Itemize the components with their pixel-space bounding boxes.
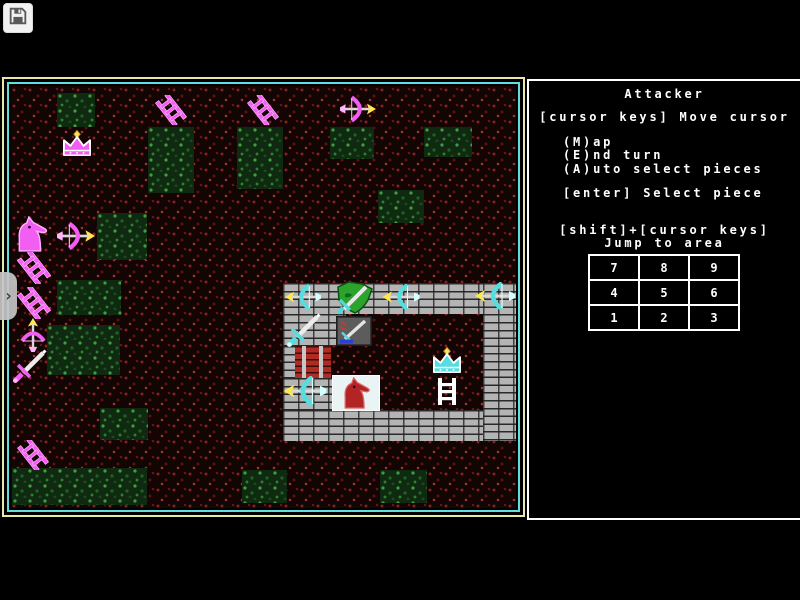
defender-crown[interactable] <box>429 347 465 375</box>
terrain-grass-patch <box>47 325 120 375</box>
drawer-toggle[interactable]: › <box>0 272 17 320</box>
menu-item-auto-select: (A)uto select pieces <box>563 163 764 176</box>
terrain-grass-patch <box>242 470 287 503</box>
terrain-grass-patch <box>12 468 147 505</box>
menu-item-map: (M)ap <box>563 136 764 149</box>
attacker-crossbow-sprite <box>57 221 95 251</box>
attacker-crossbow[interactable] <box>16 318 50 352</box>
menu-item-end-turn: (E)nd turn <box>563 149 764 162</box>
attacker-ladder-sprite <box>17 287 51 319</box>
defender-knight-selected[interactable] <box>333 376 379 410</box>
terrain-grass-patch <box>424 127 472 157</box>
terrain-grass-patch <box>380 470 427 503</box>
castle-gate <box>295 346 331 378</box>
select-piece-hint: [enter] Select piece <box>563 186 764 200</box>
terrain-grass-patch <box>57 93 95 127</box>
defender-crossbow-sprite <box>283 376 327 406</box>
attacker-crossbow-sprite <box>340 94 376 124</box>
defender-emblem-sprite <box>336 316 372 346</box>
terrain-grass-patch <box>378 190 424 223</box>
attacker-ladder[interactable] <box>16 440 50 470</box>
map-frame <box>2 77 525 517</box>
command-sidebar: Attacker [cursor keys] Move cursor (M)ap… <box>527 79 800 520</box>
defender-crossbow[interactable] <box>285 283 321 311</box>
defender-ladder[interactable] <box>436 378 458 405</box>
terrain-grass-patch <box>57 280 121 315</box>
defender-shield[interactable] <box>335 280 375 316</box>
keypad-cell-8: 8 <box>639 255 689 280</box>
attacker-ladder[interactable] <box>17 252 51 284</box>
attacker-crown[interactable] <box>58 130 96 158</box>
defender-crossbow-sprite <box>474 282 516 310</box>
attacker-knight[interactable] <box>13 216 49 252</box>
keypad-cell-6: 6 <box>689 280 739 305</box>
attacker-ladder[interactable] <box>155 95 187 125</box>
terrain-grass-patch <box>148 127 194 193</box>
keypad-cell-3: 3 <box>689 305 739 330</box>
game-map[interactable] <box>11 86 516 508</box>
castle-wall <box>283 410 516 441</box>
terrain-grass-patch <box>100 408 148 440</box>
attacker-ladder-sprite <box>16 440 50 470</box>
defender-sword-sprite <box>284 312 324 348</box>
jump-hint-keys: [shift]+[cursor keys] <box>529 223 800 237</box>
keypad-cell-5: 5 <box>639 280 689 305</box>
attacker-ladder-sprite <box>17 252 51 284</box>
turn-title: Attacker <box>529 87 800 101</box>
attacker-crossbow[interactable] <box>57 221 95 251</box>
map-frame-inner <box>7 82 520 512</box>
move-cursor-hint: [cursor keys] Move cursor <box>529 110 800 124</box>
defender-crossbow[interactable] <box>380 284 422 310</box>
defender-knight-selected-sprite <box>339 377 372 409</box>
defender-shield-sprite <box>335 280 375 316</box>
attacker-sword-sprite <box>12 348 48 384</box>
attacker-ladder-sprite <box>155 95 187 125</box>
defender-crown-sprite <box>429 347 465 375</box>
keypad-cell-9: 9 <box>689 255 739 280</box>
defender-crossbow[interactable] <box>283 376 327 406</box>
defender-ladder-sprite <box>436 378 458 405</box>
save-button[interactable] <box>3 3 33 33</box>
defender-crossbow-sprite <box>380 284 422 310</box>
defender-sword[interactable] <box>284 312 324 348</box>
attacker-ladder-sprite <box>247 95 279 125</box>
attacker-sword[interactable] <box>12 348 48 384</box>
terrain-grass-patch <box>330 127 374 159</box>
defender-crossbow-sprite <box>285 283 321 311</box>
keypad-cell-1: 1 <box>589 305 639 330</box>
jump-area-keypad: 7 8 9 4 5 6 1 2 3 <box>588 254 740 331</box>
jump-hint-label: Jump to area <box>529 236 800 250</box>
attacker-crossbow[interactable] <box>340 94 376 124</box>
keypad-cell-7: 7 <box>589 255 639 280</box>
defender-crossbow[interactable] <box>474 282 516 310</box>
castle-wall <box>283 346 295 378</box>
attacker-ladder[interactable] <box>247 95 279 125</box>
command-menu: (M)ap (E)nd turn (A)uto select pieces <box>563 136 764 176</box>
attacker-ladder[interactable] <box>17 287 51 319</box>
chevron-right-icon: › <box>4 288 14 304</box>
keypad-cell-4: 4 <box>589 280 639 305</box>
save-icon <box>7 5 29 31</box>
terrain-grass-patch <box>237 127 283 189</box>
attacker-crossbow-sprite <box>16 318 50 352</box>
defender-emblem[interactable] <box>336 316 372 346</box>
keypad-cell-2: 2 <box>639 305 689 330</box>
attacker-knight-sprite <box>13 216 49 252</box>
attacker-crown-sprite <box>58 130 96 158</box>
terrain-grass-patch <box>97 213 147 260</box>
